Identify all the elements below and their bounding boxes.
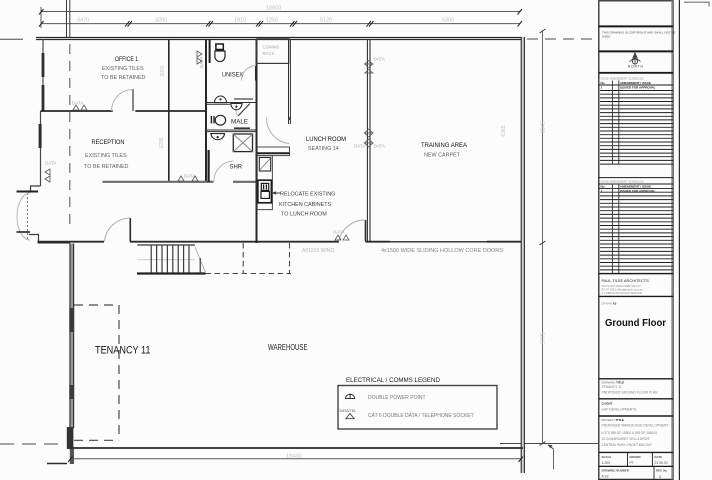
svg-text:DOUBLE POWER POINT: DOUBLE POWER POINT — [368, 395, 426, 401]
svg-text:DRAWING NUMBER: DRAWING NUMBER — [602, 468, 630, 472]
svg-text:1:200: 1:200 — [602, 461, 611, 465]
svg-text:SEATING 14: SEATING 14 — [308, 146, 339, 152]
svg-text:ELECTRICAL / COMMS LEGEND: ELECTRICAL / COMMS LEGEND — [346, 377, 441, 384]
svg-text:UNISEX: UNISEX — [222, 72, 243, 79]
svg-text:PROJECT TITLE: PROJECT TITLE — [602, 418, 624, 422]
svg-text:1910: 1910 — [234, 18, 246, 24]
svg-text:AMENDMENT / ISSUE: AMENDMENT / ISSUE — [620, 81, 651, 85]
svg-text:A-02: A-02 — [602, 474, 609, 478]
svg-text:DATA: DATA — [354, 144, 365, 149]
svg-text:TENANCY 11: TENANCY 11 — [95, 345, 151, 357]
svg-text:6300: 6300 — [442, 18, 454, 24]
svg-text:PROPOSED GROUND FLOOR PLAN: PROPOSED GROUND FLOOR PLAN — [602, 391, 659, 395]
svg-text:18430: 18430 — [286, 454, 301, 460]
svg-text:SHR: SHR — [230, 164, 243, 171]
svg-text:KITCHEN CABINETS: KITCHEN CABINETS — [279, 202, 332, 208]
svg-text:PH 07 4953 office@ptarch.com.: PH 07 4953 office@ptarch.com.au — [602, 288, 644, 292]
svg-text:A61215 WIND.: A61215 WIND. — [302, 248, 335, 254]
svg-text:N O R T H: N O R T H — [628, 65, 643, 69]
svg-text:WAREHOUSE: WAREHOUSE — [268, 343, 308, 352]
svg-text:EXISTING TILES: EXISTING TILES — [102, 66, 144, 72]
svg-text:ISSUE AMENDMENT SCHEDULE: ISSUE AMENDMENT SCHEDULE — [601, 179, 644, 183]
svg-text:Ground Floor: Ground Floor — [605, 318, 666, 329]
svg-text:CAT 6 DOUBLE DATA / TELEPHONE: CAT 6 DOUBLE DATA / TELEPHONE SOCKET — [368, 413, 474, 419]
svg-text:PROPOSED WAREHOUSE DEVELOPMENT: PROPOSED WAREHOUSE DEVELOPMENT — [602, 423, 669, 427]
svg-text:A COMPLETE DESIGN SERVICE: A COMPLETE DESIGN SERVICE — [602, 291, 643, 295]
svg-text:DATA: DATA — [374, 57, 385, 62]
svg-text:DATE: DATE — [654, 455, 662, 459]
svg-text:5120: 5120 — [320, 18, 332, 24]
svg-text:DATA: DATA — [374, 144, 385, 149]
svg-text:LUNCH ROOM: LUNCH ROOM — [306, 136, 346, 143]
svg-text:EXISTING TILES: EXISTING TILES — [85, 153, 127, 159]
svg-text:4x1500 WIDE SLIDING HOLLOW COR: 4x1500 WIDE SLIDING HOLLOW CORE DOORS — [381, 248, 503, 254]
svg-text:23.06.20: 23.06.20 — [654, 461, 667, 465]
svg-text:CLIENT: CLIENT — [602, 402, 613, 406]
svg-text:8045: 8045 — [541, 121, 547, 133]
svg-text:LOTS 999 DP 19500 & 999 SP 18: LOTS 999 DP 19500 & 999 SP 185000 — [602, 431, 658, 435]
svg-text:REV. No: REV. No — [656, 468, 667, 472]
svg-text:GAP DEVELOPMENTS: GAP DEVELOPMENTS — [602, 407, 638, 411]
svg-text:TO LUNCH ROOM: TO LUNCH ROOM — [281, 212, 327, 218]
svg-text:OFFICE 1: OFFICE 1 — [115, 56, 138, 63]
svg-text:3090: 3090 — [160, 65, 166, 76]
svg-text:DATA/TEL: DATA/TEL — [340, 409, 357, 413]
svg-text:TRAINING AREA: TRAINING AREA — [421, 142, 468, 149]
svg-text:1250: 1250 — [266, 18, 278, 24]
svg-text:RECEPTION: RECEPTION — [92, 139, 125, 146]
svg-text:TENANCY 11: TENANCY 11 — [602, 385, 622, 389]
svg-text:DATA: DATA — [72, 101, 83, 106]
svg-text:MALE: MALE — [231, 119, 248, 126]
svg-text:COMMS: COMMS — [263, 45, 280, 50]
svg-text:TO BE RETAINED: TO BE RETAINED — [101, 75, 146, 81]
svg-text:CENTRAL PARK, PAGET MACKAY: CENTRAL PARK, PAGET MACKAY — [602, 443, 653, 447]
svg-text:DATA: DATA — [45, 161, 56, 166]
svg-text:NEW CARPET: NEW CARPET — [424, 153, 461, 159]
svg-text:DATA: DATA — [333, 230, 344, 235]
svg-text:ISSUE AMENDMENT SCHEDULE: ISSUE AMENDMENT SCHEDULE — [601, 76, 644, 80]
svg-text:3295: 3295 — [159, 137, 165, 148]
svg-text:6365: 6365 — [501, 125, 507, 136]
svg-text:THIS DRAWING IS COPYRIGHT AND: THIS DRAWING IS COPYRIGHT AND SHALL NOT … — [602, 31, 676, 35]
svg-text:TO BE RETAINED: TO BE RETAINED — [84, 164, 129, 170]
svg-text:RELOCATE EXISTING: RELOCATE EXISTING — [280, 192, 335, 198]
svg-text:18600: 18600 — [266, 6, 281, 12]
svg-text:No.: No. — [601, 81, 606, 85]
svg-text:USED: USED — [602, 35, 611, 39]
svg-text:3470: 3470 — [77, 18, 89, 24]
svg-text:3: 3 — [659, 475, 661, 479]
svg-text:20-34 MARGARET VELLA DRIVE: 20-34 MARGARET VELLA DRIVE — [602, 437, 650, 441]
svg-text:DRAWING TITLE: DRAWING TITLE — [602, 380, 625, 384]
svg-text:9775: 9775 — [541, 332, 547, 344]
svg-text:RACK: RACK — [263, 51, 275, 56]
svg-text:PAUL TILSE ARCHITECTS: PAUL TILSE ARCHITECTS — [602, 278, 650, 283]
svg-text:SUITE 203 4/38 EXHIBITION ST: SUITE 203 4/38 EXHIBITION ST — [602, 284, 642, 288]
svg-text:DRAWN A3: DRAWN A3 — [602, 302, 617, 306]
svg-text:DRAWN: DRAWN — [630, 455, 641, 459]
svg-text:PT: PT — [630, 461, 634, 465]
svg-text:SCALE: SCALE — [602, 455, 612, 459]
svg-text:3200: 3200 — [155, 18, 167, 24]
svg-text:ISSUED FOR APPROVAL: ISSUED FOR APPROVAL — [620, 85, 656, 89]
